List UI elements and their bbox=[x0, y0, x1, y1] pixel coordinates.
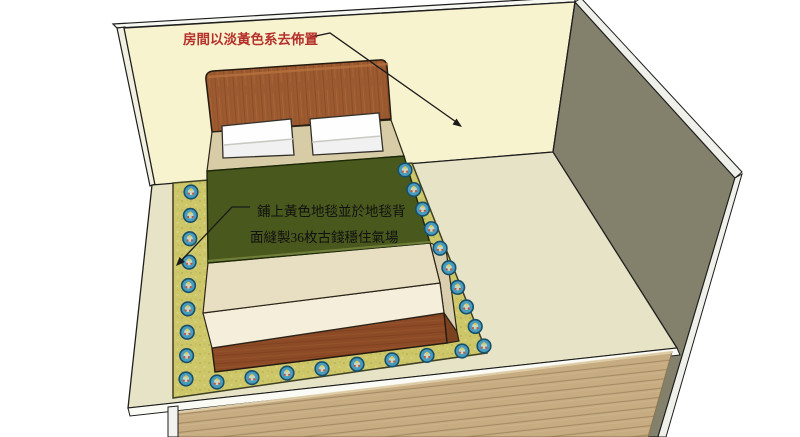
ancient-coin bbox=[180, 325, 194, 339]
illustration-canvas: 房間以淡黃色系去佈置 鋪上黃色地毯並於地毯背 面縫製36枚古錢穩住氣場 bbox=[0, 0, 800, 437]
ancient-coin bbox=[451, 281, 465, 295]
ancient-coin bbox=[407, 183, 421, 197]
ancient-coin bbox=[181, 302, 195, 316]
ancient-coin bbox=[184, 209, 198, 223]
ancient-coin bbox=[182, 279, 196, 293]
ancient-coin bbox=[315, 362, 329, 376]
ancient-coin bbox=[179, 372, 193, 386]
ancient-coin bbox=[398, 163, 412, 177]
ancient-coin bbox=[420, 349, 434, 363]
ancient-coin bbox=[350, 357, 364, 371]
ancient-coin bbox=[184, 185, 198, 199]
ancient-coin bbox=[416, 202, 430, 216]
ancient-coin bbox=[245, 371, 259, 385]
ancient-coin bbox=[460, 300, 474, 314]
ancient-coin bbox=[433, 241, 447, 255]
annotation-carpet-note-line1: 鋪上黃色地毯並於地毯背 bbox=[257, 203, 406, 219]
corner-post bbox=[168, 406, 178, 437]
room-3d-view: 房間以淡黃色系去佈置 鋪上黃色地毯並於地毯背 面縫製36枚古錢穩住氣場 bbox=[0, 0, 800, 437]
annotation-carpet-note-line2: 面縫製36枚古錢穩住氣場 bbox=[250, 229, 399, 245]
ancient-coin bbox=[425, 222, 439, 236]
ancient-coin bbox=[210, 375, 224, 389]
ancient-coin bbox=[455, 344, 469, 358]
ancient-coin bbox=[180, 349, 194, 363]
ancient-coin bbox=[183, 232, 197, 246]
ancient-coin bbox=[280, 366, 294, 380]
ancient-coin bbox=[468, 320, 482, 334]
ancient-coin bbox=[477, 339, 491, 353]
ancient-coin bbox=[442, 261, 456, 275]
annotation-room-color-note: 房間以淡黃色系去佈置 bbox=[183, 31, 318, 47]
ancient-coin bbox=[385, 353, 399, 367]
